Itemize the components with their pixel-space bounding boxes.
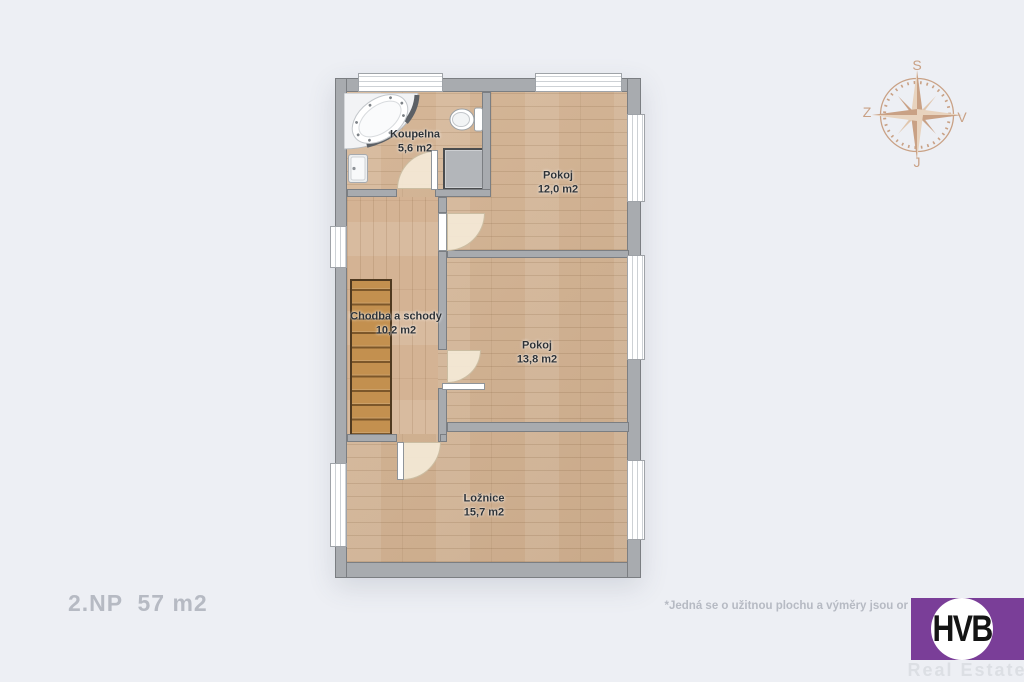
window: [330, 463, 347, 547]
compass-north-label: S: [912, 57, 921, 73]
brand-logo: HVB Real Estate: [911, 598, 1024, 682]
sink-icon: [348, 154, 368, 183]
compass-rose-icon: S V J Z: [860, 48, 974, 176]
door-leaf-pokoj-138: [442, 383, 485, 390]
window: [358, 73, 443, 92]
window: [627, 114, 645, 202]
room-label-pokoj-12: Pokoj 12,0 m2: [538, 170, 578, 197]
wall-hall-right-a: [438, 197, 447, 213]
compass-west-label: Z: [863, 104, 872, 120]
room-name: Pokoj: [538, 170, 578, 184]
room-name: Pokoj: [517, 340, 557, 354]
room-area: 5,6 m2: [390, 142, 440, 156]
room-name: Koupelna: [390, 129, 440, 143]
staircase: [350, 279, 392, 437]
logo-disc: HVB: [931, 598, 993, 660]
door-leaf-bathroom: [431, 150, 438, 190]
room-label-koupelna: Koupelna 5,6 m2: [390, 129, 440, 156]
room-label-loznice: Ložnice 15,7 m2: [464, 493, 505, 520]
window: [535, 73, 622, 92]
room-area: 13,8 m2: [517, 353, 557, 367]
room-area: 15,7 m2: [464, 506, 505, 520]
window: [330, 226, 347, 268]
room-label-chodba: Chodba a schody 10,2 m2: [350, 311, 442, 338]
toilet-icon: [449, 107, 483, 132]
compass-east-label: V: [957, 109, 966, 125]
window: [627, 460, 645, 540]
room-area: 10,2 m2: [350, 324, 442, 338]
door-leaf-loznice: [397, 442, 404, 480]
logo-subtitle: Real Estate: [903, 660, 1024, 681]
floor-title: 2.NP 57 m2: [68, 590, 208, 617]
wall-loznice-top-left-a: [347, 434, 397, 442]
floor-plan: Koupelna 5,6 m2 Pokoj 12,0 m2 Chodba a s…: [335, 78, 641, 578]
door-leaf-pokoj-12: [438, 213, 447, 251]
compass-south-label: J: [914, 154, 921, 170]
disclaimer-text: *Jedná se o užitnou plochu a výměry jsou…: [665, 600, 908, 612]
wall-outer-bottom: [335, 562, 641, 578]
room-name: Ložnice: [464, 493, 505, 507]
room-label-pokoj-138: Pokoj 13,8 m2: [517, 340, 557, 367]
wall-loznice-top-left-b: [440, 434, 447, 442]
wall-bathroom-right: [482, 92, 491, 197]
wall-loznice-top-right: [447, 422, 629, 432]
wall-bathroom-bottom-b: [435, 189, 491, 197]
window: [627, 255, 645, 360]
room-area: 12,0 m2: [538, 183, 578, 197]
room-name: Chodba a schody: [350, 311, 442, 325]
wall-bathroom-bottom-a: [347, 189, 397, 197]
wall-pokoj-divider: [447, 250, 629, 258]
page: Koupelna 5,6 m2 Pokoj 12,0 m2 Chodba a s…: [0, 0, 1024, 682]
logo-monogram: HVB: [932, 608, 991, 650]
utility-shaft: [443, 148, 485, 190]
